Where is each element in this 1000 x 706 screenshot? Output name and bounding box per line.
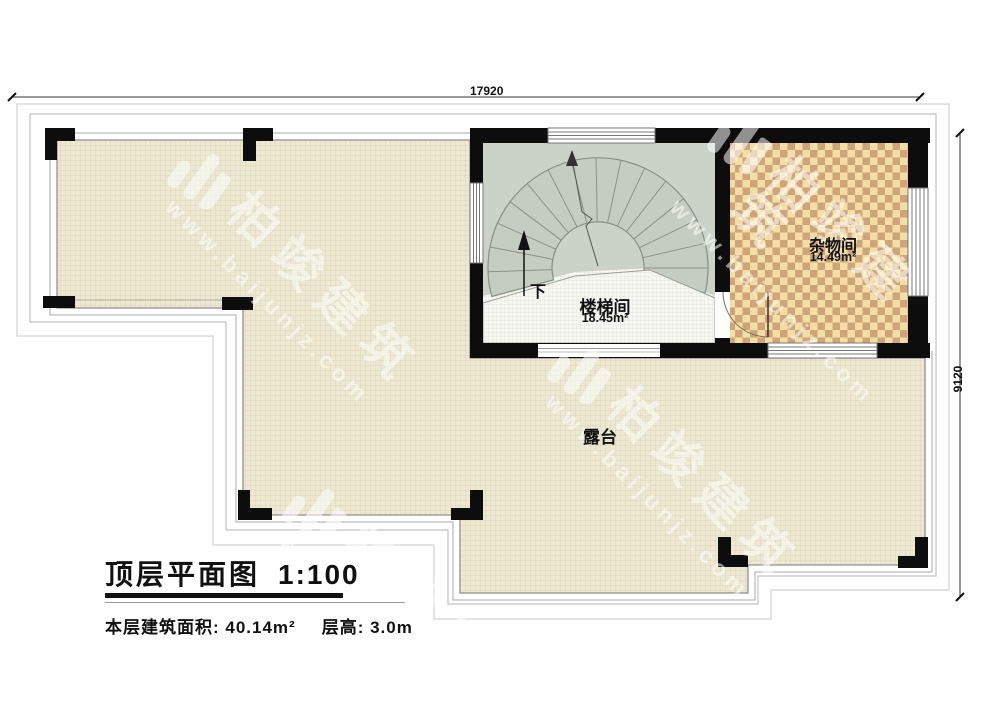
dimension-top: 17920: [470, 84, 503, 98]
note-floor-area: 本层建筑面积: 40.14m²: [105, 618, 296, 637]
stair-direction-label: 下: [530, 278, 546, 302]
drawing-title: 顶层平面图: [105, 559, 260, 590]
title-underline-thin: [105, 602, 405, 603]
title-underline-thick: [105, 593, 343, 598]
note-floor-height: 层高: 3.0m: [322, 618, 413, 637]
room-area-stairwell: 18.45m²: [560, 311, 650, 325]
room-label-terrace: 露台: [555, 423, 645, 448]
drawing-title-row: 顶层平面图1:100: [105, 553, 360, 593]
dimension-right: 9120: [951, 355, 965, 403]
drawing-scale: 1:100: [278, 559, 360, 590]
room-area-storage: 14.49m²: [788, 250, 878, 264]
floor-plan-canvas: 柏竣建筑 www.baijunjz.com 柏竣建筑 www.baijunjz.…: [0, 0, 1000, 706]
floor-plan-drawing: [0, 0, 1000, 706]
drawing-notes: 本层建筑面积: 40.14m²层高: 3.0m: [105, 613, 413, 638]
